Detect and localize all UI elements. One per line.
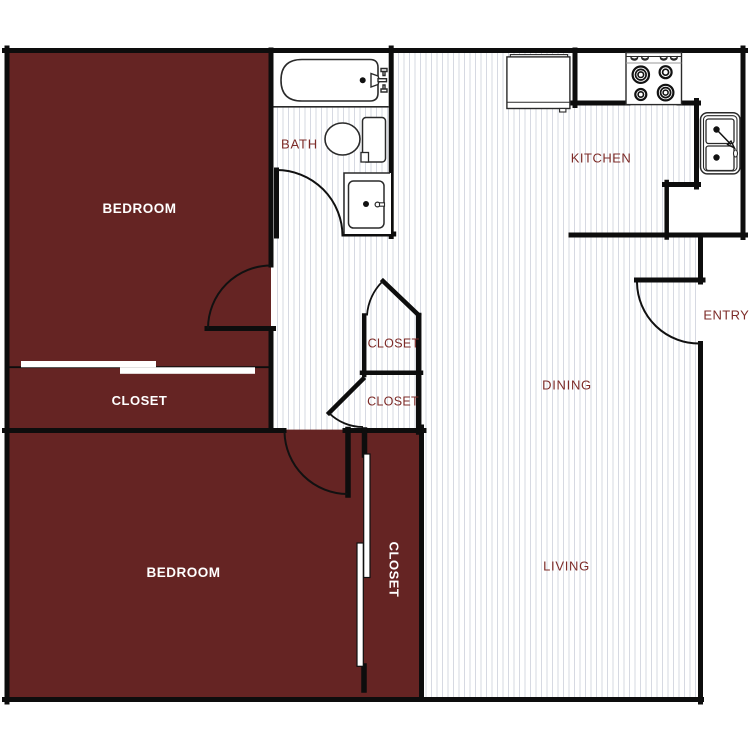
svg-text:BEDROOM: BEDROOM — [103, 201, 177, 216]
svg-text:CLOSET: CLOSET — [368, 337, 420, 351]
svg-text:LIVING: LIVING — [543, 559, 590, 574]
svg-text:BATH: BATH — [281, 137, 318, 152]
svg-text:BEDROOM: BEDROOM — [147, 565, 221, 580]
svg-text:DINING: DINING — [542, 378, 592, 393]
svg-text:KITCHEN: KITCHEN — [571, 151, 632, 166]
svg-text:CLOSET: CLOSET — [387, 542, 402, 598]
svg-text:CLOSET: CLOSET — [112, 393, 168, 408]
svg-text:ENTRY: ENTRY — [703, 308, 749, 323]
svg-text:CLOSET: CLOSET — [367, 395, 419, 409]
